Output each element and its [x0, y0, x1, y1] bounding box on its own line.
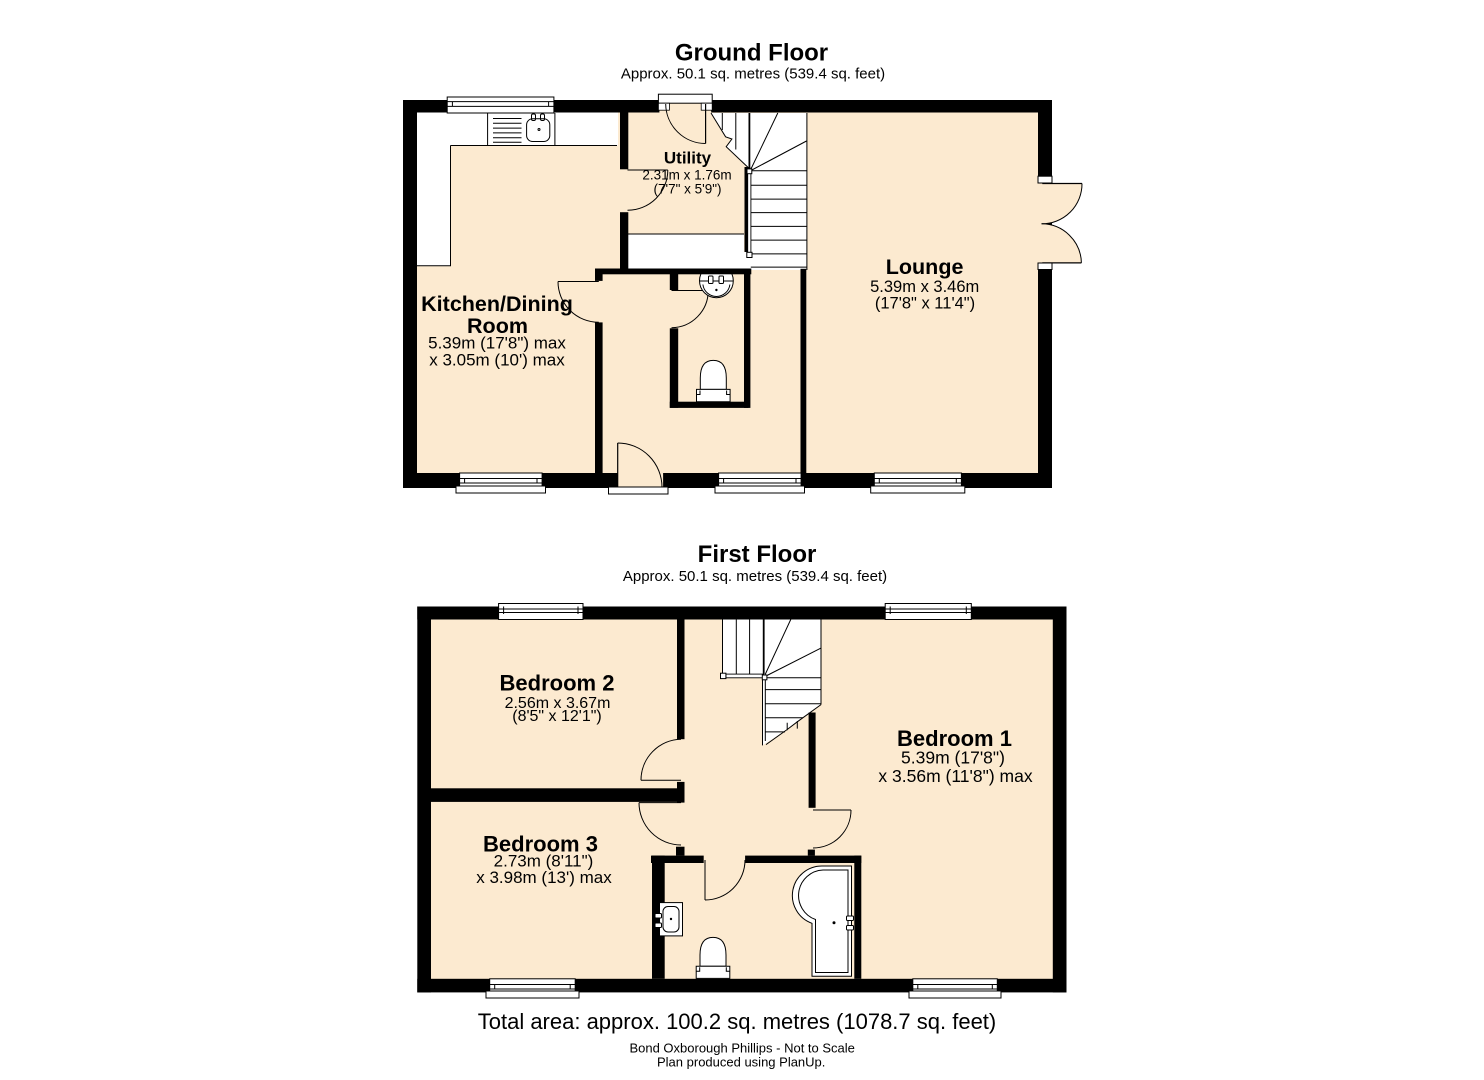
svg-text:x 3.05m (10') max: x 3.05m (10') max — [429, 350, 565, 369]
svg-text:Bedroom 2: Bedroom 2 — [500, 671, 615, 696]
svg-text:Utility: Utility — [664, 149, 712, 168]
svg-text:2.31m x 1.76m: 2.31m x 1.76m — [642, 168, 731, 183]
svg-text:5.39m x 3.46m: 5.39m x 3.46m — [870, 278, 979, 296]
svg-text:Ground Floor: Ground Floor — [675, 40, 828, 67]
svg-text:Plan produced using PlanUp.: Plan produced using PlanUp. — [657, 1055, 825, 1070]
svg-text:5.39m (17'8"): 5.39m (17'8") — [901, 747, 1005, 767]
svg-text:Total area: approx. 100.2 sq.: Total area: approx. 100.2 sq. metres (10… — [478, 1009, 997, 1034]
svg-text:Lounge: Lounge — [886, 255, 964, 279]
svg-text:x 3.98m (13') max: x 3.98m (13') max — [476, 868, 612, 887]
svg-text:Kitchen/Dining: Kitchen/Dining — [421, 292, 573, 316]
svg-text:First Floor: First Floor — [698, 541, 817, 568]
svg-text:(7'7" x 5'9"): (7'7" x 5'9") — [653, 182, 721, 197]
svg-text:x 3.56m (11'8") max: x 3.56m (11'8") max — [878, 766, 1032, 786]
svg-text:Approx. 50.1 sq. metres (539.4: Approx. 50.1 sq. metres (539.4 sq. feet) — [623, 568, 887, 585]
svg-text:(8'5" x 12'1"): (8'5" x 12'1") — [512, 708, 602, 725]
svg-text:Bond Oxborough Phillips - Not: Bond Oxborough Phillips - Not to Scale — [629, 1041, 854, 1056]
svg-text:(17'8" x 11'4"): (17'8" x 11'4") — [875, 294, 975, 312]
svg-text:Approx. 50.1 sq. metres (539.4: Approx. 50.1 sq. metres (539.4 sq. feet) — [621, 66, 885, 83]
